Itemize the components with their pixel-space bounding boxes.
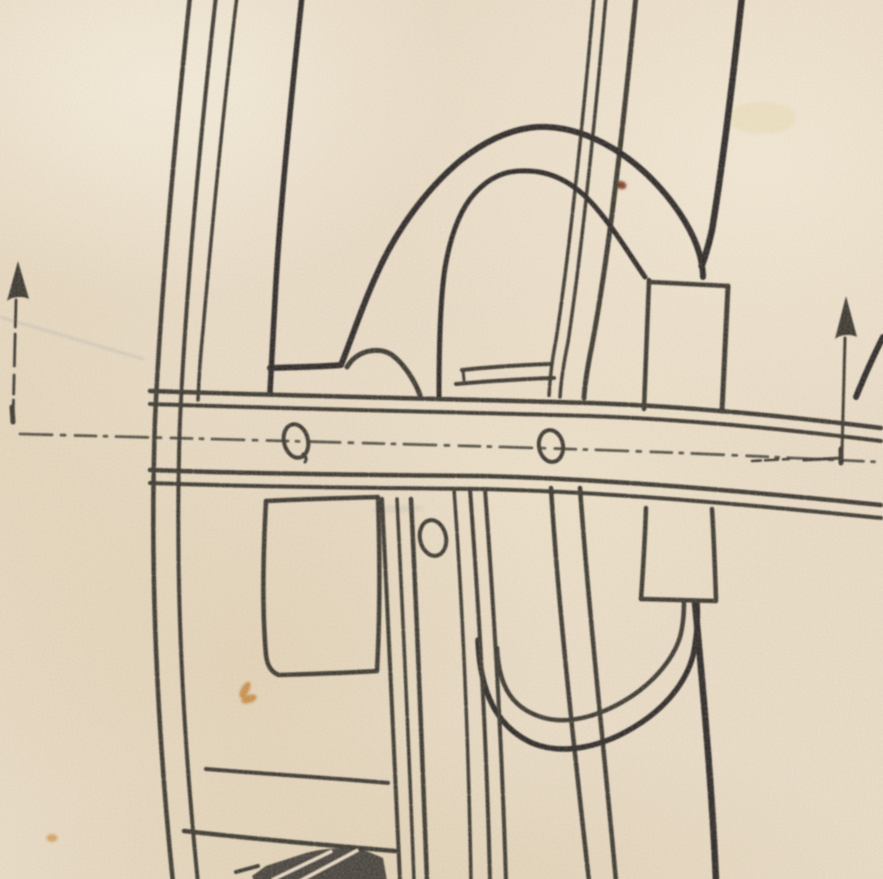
scanned-page xyxy=(0,0,883,879)
paper-grain-dark xyxy=(0,0,883,879)
drawing-canvas xyxy=(0,0,883,879)
